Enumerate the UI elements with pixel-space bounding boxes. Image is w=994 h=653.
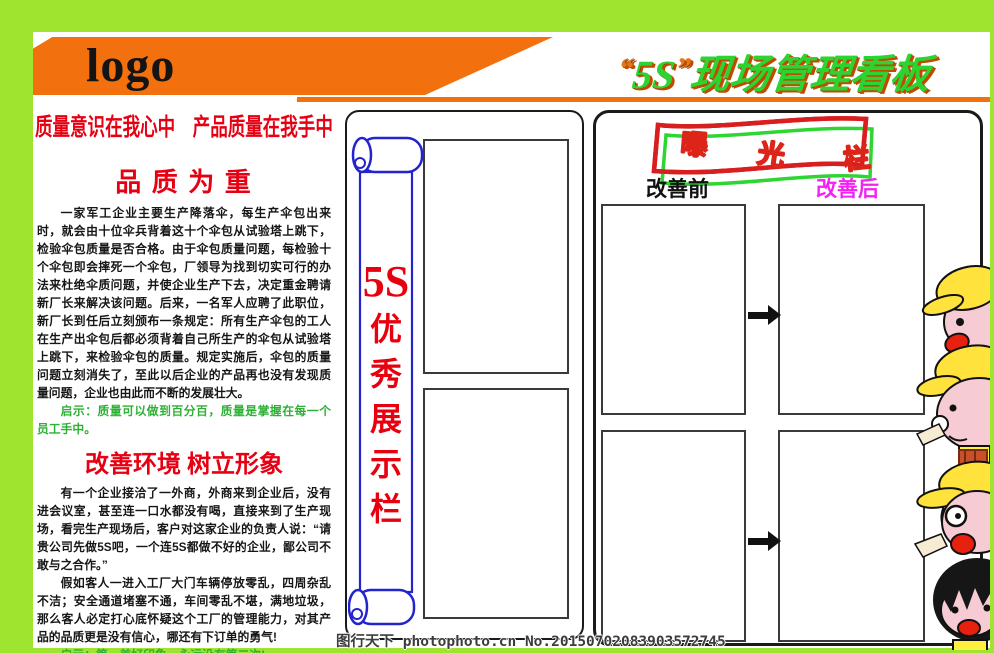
before-label: 改善前 bbox=[646, 173, 709, 203]
before-photo-placeholder-top bbox=[601, 204, 746, 415]
scroll-title-vertical: 5S 优 秀 展 示 栏 bbox=[354, 258, 418, 537]
story2-body2: 假如客人一进入工厂大门车辆停放零乱，四周杂乱不洁；安全通道堵塞不通，车间零乱不堪… bbox=[37, 574, 331, 646]
board-title: “5S”现场管理看板 bbox=[615, 42, 933, 100]
title-5s: 5S bbox=[630, 52, 677, 97]
story1-tip: 启示：质量可以做到百分百，质量是掌握在每一个员工手中。 bbox=[37, 402, 331, 438]
quality-slogan: 质量意识在我心中 产品质量在我手中 bbox=[35, 107, 333, 142]
after-label: 改善后 bbox=[816, 173, 879, 203]
scroll-char: 展 bbox=[354, 402, 418, 436]
left-story-column: 品 质 为 重 一家军工企业主要生产降落伞，每生产伞包出来时，就会由十位伞兵背着… bbox=[37, 162, 331, 653]
banner-char: 曝 bbox=[679, 122, 709, 163]
cartoon-kids-illustration bbox=[913, 248, 990, 650]
after-photo-placeholder-top bbox=[778, 204, 925, 415]
scroll-char: 优 bbox=[354, 312, 418, 346]
title-text: 现场管理看板 bbox=[688, 52, 933, 97]
banner-char: 栏 bbox=[841, 136, 872, 178]
stock-site-watermark: 图行天下 photophoto.cn No.201507020839035727… bbox=[336, 630, 726, 651]
excellence-display-panel: 5S 优 秀 展 示 栏 bbox=[345, 110, 584, 640]
scroll-char-5s: 5S bbox=[354, 258, 418, 306]
story2-heading: 改善环境 树立形象 bbox=[37, 444, 331, 479]
after-photo-placeholder-bottom bbox=[778, 430, 925, 642]
display-photo-placeholder-bottom bbox=[423, 388, 569, 619]
company-logo: logo bbox=[86, 38, 175, 93]
scroll-char: 栏 bbox=[354, 492, 418, 526]
arrow-right-icon bbox=[748, 312, 768, 319]
story2-body1: 有一个企业接洽了一外商，外商来到企业后，没有进会议室，甚至连一口水都没有喝，直接… bbox=[37, 484, 331, 574]
story2-tip: 启示：第一美好印象，永远没有第二次! bbox=[37, 646, 331, 653]
arrow-right-icon bbox=[748, 538, 768, 545]
story1-heading: 品 质 为 重 bbox=[37, 162, 331, 199]
story1-body: 一家军工企业主要生产降落伞，每生产伞包出来时，就会由十位伞兵背着这十个伞包从试验… bbox=[37, 204, 331, 402]
scroll-char: 秀 bbox=[354, 357, 418, 391]
banner-char: 光 bbox=[755, 131, 787, 173]
cartoon-characters bbox=[913, 248, 990, 650]
scroll-char: 示 bbox=[354, 447, 418, 481]
poster-stage: logo “5S”现场管理看板 质量意识在我心中 产品质量在我手中 品 质 为 … bbox=[0, 0, 994, 653]
display-photo-placeholder-top bbox=[423, 139, 569, 374]
before-photo-placeholder-bottom bbox=[601, 430, 746, 642]
